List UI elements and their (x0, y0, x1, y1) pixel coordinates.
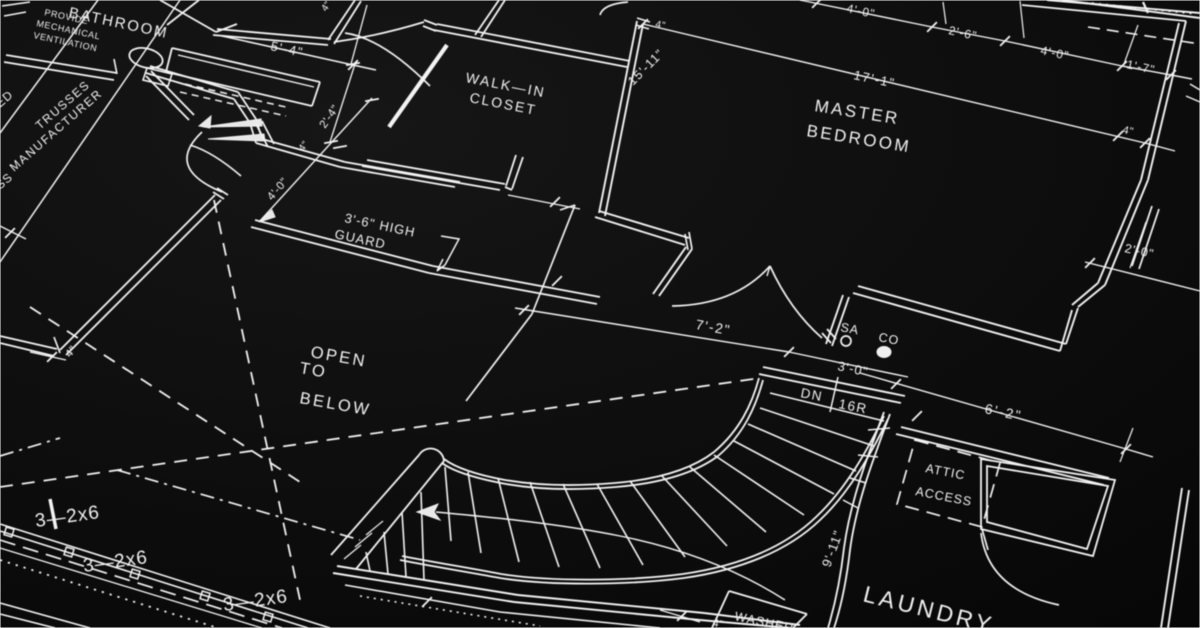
svg-text:4": 4" (711, 617, 724, 628)
svg-text:4": 4" (654, 19, 666, 32)
